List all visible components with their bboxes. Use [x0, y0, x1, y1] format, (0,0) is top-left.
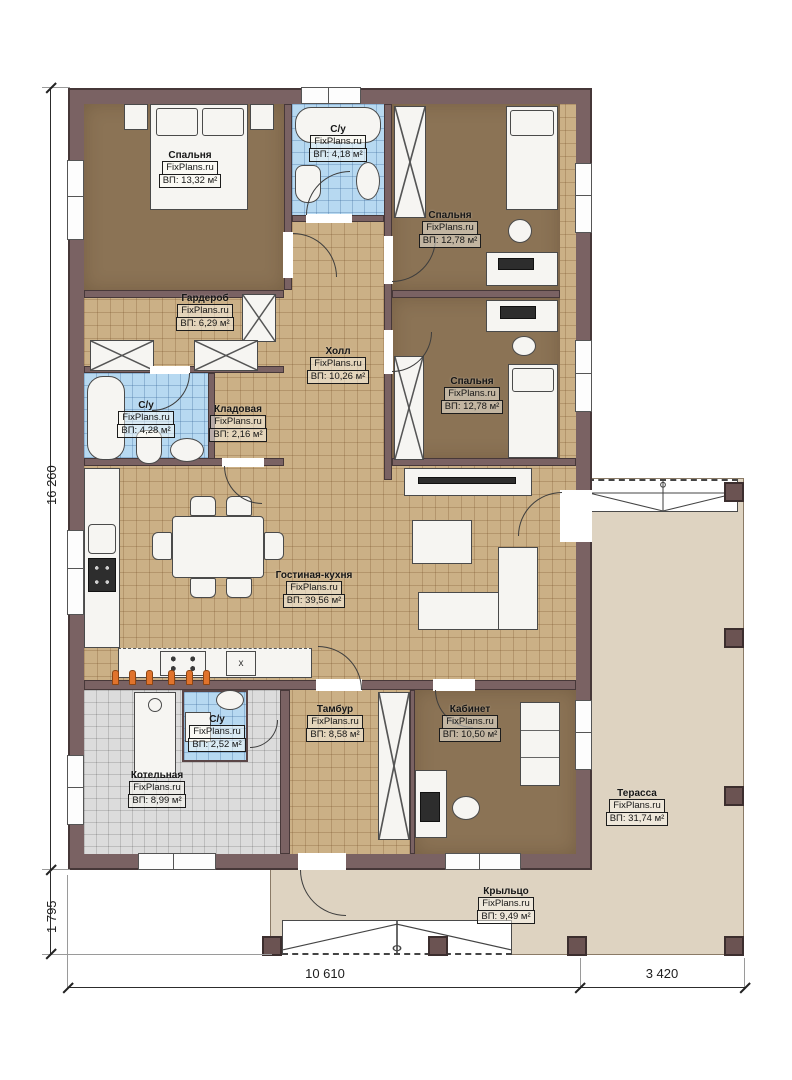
- door-gap: [306, 214, 352, 223]
- dimension-line-bottom: [68, 987, 745, 988]
- computer: [500, 306, 536, 319]
- chair: [226, 578, 252, 598]
- pillow: [512, 368, 554, 392]
- post: [262, 936, 282, 956]
- chair: [512, 336, 536, 356]
- watermark: FixPlans.ru: [177, 304, 233, 318]
- terrace-door-gap: [560, 490, 592, 542]
- window: [67, 755, 84, 825]
- sink: [356, 162, 380, 200]
- stove: [160, 651, 206, 676]
- appliance: x: [226, 651, 256, 676]
- window: [301, 87, 361, 104]
- dining-table: [172, 516, 264, 578]
- wall: [392, 290, 560, 298]
- door-gap: [283, 232, 293, 278]
- chair: [190, 496, 216, 516]
- nightstand: [124, 104, 148, 130]
- window: [138, 853, 216, 870]
- dimension-label-terrace: 3 420: [612, 966, 712, 981]
- pillow: [156, 108, 198, 136]
- wardrobe-cabinet: [378, 692, 410, 840]
- window: [575, 163, 592, 233]
- room-label-terrace: Терасса FixPlans.ru ВП: 31,74 м²: [596, 788, 678, 826]
- watermark: FixPlans.ru: [189, 725, 245, 739]
- plant: [508, 219, 532, 243]
- chair: [264, 532, 284, 560]
- watermark: FixPlans.ru: [478, 897, 534, 911]
- wardrobe-cabinet: [90, 340, 154, 371]
- post: [724, 628, 744, 648]
- room-area: ВП: 10,26 м²: [307, 370, 370, 384]
- radiator-icon: [186, 670, 193, 685]
- wardrobe-cabinet: [394, 106, 426, 218]
- bookshelf: [520, 702, 560, 786]
- tv: [418, 477, 516, 484]
- kitchen-sink: [88, 524, 116, 554]
- watermark: FixPlans.ru: [286, 581, 342, 595]
- dimension-label-left: 16 260: [44, 465, 59, 505]
- watermark: FixPlans.ru: [442, 715, 498, 729]
- room-area: ВП: 2,16 м²: [209, 428, 266, 442]
- wall: [280, 690, 290, 854]
- coffee-table: [412, 520, 472, 564]
- room-area: ВП: 39,56 м²: [283, 594, 346, 608]
- watermark: FixPlans.ru: [162, 161, 218, 175]
- boiler-dial: [148, 698, 162, 712]
- room-label-bedroom3: Спальня FixPlans.ru ВП: 12,78 м²: [428, 376, 516, 414]
- post: [724, 936, 744, 956]
- terrace-deck: [590, 478, 744, 955]
- room-area: ВП: 12,78 м²: [441, 400, 504, 414]
- wardrobe-cabinet: [242, 294, 276, 342]
- room-label-bath1: С/у FixPlans.ru ВП: 4,18 м²: [300, 124, 376, 162]
- room-area: ВП: 9,49 м²: [477, 910, 534, 924]
- room-label-office: Кабинет FixPlans.ru ВП: 10,50 м²: [430, 704, 510, 742]
- extension-line: [42, 869, 70, 870]
- computer: [420, 792, 440, 822]
- window: [67, 160, 84, 240]
- watermark: FixPlans.ru: [129, 781, 185, 795]
- watermark: FixPlans.ru: [307, 715, 363, 729]
- pillow: [510, 110, 554, 136]
- room-label-hall: Холл FixPlans.ru ВП: 10,26 м²: [298, 346, 378, 384]
- room-label-bedroom1: Спальня FixPlans.ru ВП: 13,32 м²: [142, 150, 238, 188]
- room-label-bath3: С/у FixPlans.ru ВП: 2,52 м²: [186, 714, 248, 752]
- post: [724, 482, 744, 502]
- post: [724, 786, 744, 806]
- window: [67, 530, 84, 615]
- chair: [190, 578, 216, 598]
- radiator-icon: [168, 670, 175, 685]
- room-label-bath2: С/у FixPlans.ru ВП: 4,28 м²: [110, 400, 182, 438]
- room-label-bedroom2: Спальня FixPlans.ru ВП: 12,78 м²: [408, 210, 492, 248]
- terrace-railing: [588, 479, 738, 512]
- radiator-icon: [112, 670, 119, 685]
- chair: [452, 796, 480, 820]
- sofa: [498, 547, 538, 630]
- room-label-boiler: Котельная FixPlans.ru ВП: 8,99 м²: [118, 770, 196, 808]
- porch-steps: [282, 920, 512, 955]
- wardrobe-cabinet: [394, 356, 424, 460]
- extension-line: [42, 87, 70, 88]
- watermark: FixPlans.ru: [310, 135, 366, 149]
- watermark: FixPlans.ru: [118, 411, 174, 425]
- room-area: ВП: 6,29 м²: [176, 317, 233, 331]
- radiator-icon: [146, 670, 153, 685]
- room-label-porch: Крыльцо FixPlans.ru ВП: 9,49 м²: [470, 886, 542, 924]
- room-area: ВП: 8,58 м²: [306, 728, 363, 742]
- dimension-label-porch: 1 795: [44, 900, 59, 933]
- floor-plan: x Спальня FixPlan: [0, 0, 792, 1080]
- window: [575, 340, 592, 412]
- post: [567, 936, 587, 956]
- watermark: FixPlans.ru: [210, 415, 266, 429]
- stove: [88, 558, 116, 592]
- watermark: FixPlans.ru: [609, 799, 665, 813]
- radiator-icon: [203, 670, 210, 685]
- computer: [498, 258, 534, 270]
- watermark: FixPlans.ru: [444, 387, 500, 401]
- watermark: FixPlans.ru: [422, 221, 478, 235]
- room-area: ВП: 31,74 м²: [606, 812, 669, 826]
- radiator-icon: [129, 670, 136, 685]
- room-label-wardrobe: Гардероб FixPlans.ru ВП: 6,29 м²: [166, 293, 244, 331]
- room-area: ВП: 10,50 м²: [439, 728, 502, 742]
- dimension-label-house: 10 610: [270, 966, 380, 981]
- extension-line: [744, 958, 745, 989]
- extension-line: [67, 875, 68, 989]
- nightstand: [250, 104, 274, 130]
- room-label-living: Гостиная-кухня FixPlans.ru ВП: 39,56 м²: [266, 570, 362, 608]
- room-area: ВП: 8,99 м²: [128, 794, 185, 808]
- wall: [384, 104, 392, 480]
- chair: [152, 532, 172, 560]
- room-label-storage: Кладовая FixPlans.ru ВП: 2,16 м²: [206, 404, 270, 442]
- pillow: [202, 108, 244, 136]
- entry-door-gap: [298, 853, 346, 870]
- room-label-vestibule: Тамбур FixPlans.ru ВП: 8,58 м²: [298, 704, 372, 742]
- window: [445, 853, 521, 870]
- sink: [170, 438, 204, 462]
- room-area: ВП: 2,52 м²: [188, 738, 245, 752]
- room-area: ВП: 4,18 м²: [309, 148, 366, 162]
- extension-line: [42, 954, 272, 955]
- room-area: ВП: 12,78 м²: [419, 234, 482, 248]
- room-area: ВП: 4,28 м²: [117, 424, 174, 438]
- watermark: FixPlans.ru: [310, 357, 366, 371]
- window: [575, 700, 592, 770]
- post: [428, 936, 448, 956]
- wardrobe-cabinet: [194, 340, 258, 371]
- room-area: ВП: 13,32 м²: [159, 174, 222, 188]
- sink: [216, 690, 244, 710]
